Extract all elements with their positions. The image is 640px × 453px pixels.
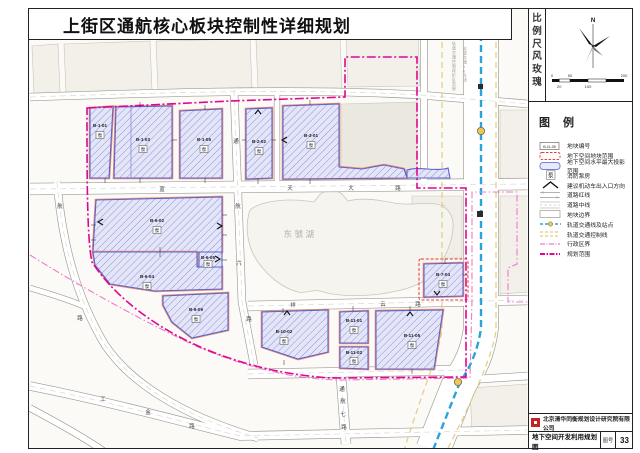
road-label: 祥 [290, 301, 296, 309]
pump-label: 泵 [155, 228, 160, 234]
block-B-7-04 [424, 263, 463, 297]
title-box: 上街区通航核心板块控制性详细规划 [28, 8, 512, 40]
block-label: B-11-01 [346, 318, 363, 323]
wind-rose-icon [579, 28, 610, 64]
road-label: 天 [287, 185, 293, 192]
svg-text:0: 0 [551, 73, 554, 78]
lake [247, 190, 453, 295]
legend-item: 道路红线 [539, 190, 629, 200]
block-label: B-11-05 [404, 333, 421, 338]
road-label: 六 [236, 259, 242, 267]
rail-line-label: 轨道交通10号线 [463, 46, 467, 82]
drawing-title: 地下空间开发利用规划图 [529, 432, 600, 449]
block-B-6-02 [93, 197, 222, 252]
company-name: 北京清华同衡规划设计研究院有限公司 [543, 414, 631, 432]
road-label: 路 [189, 422, 195, 430]
pump-label: 泵 [352, 328, 357, 334]
road-label: 航 [340, 397, 346, 405]
road-label: 航 [235, 202, 241, 210]
underground-range-swatch [539, 151, 563, 161]
pump-label: 泵 [141, 147, 146, 153]
pump-label: 泵 [352, 359, 357, 365]
block-label: B-1-05 [197, 137, 211, 142]
rail-protection-label: 轨道交通控制保护区范围 [452, 41, 456, 91]
sidebar: 比例尺风玫瑰 N 0 50 200 [528, 8, 633, 449]
legend-item-label: 地块编号 [567, 141, 590, 150]
block-label: B-6-05 [201, 255, 215, 260]
block-label: B-1-03 [136, 137, 150, 142]
lake-label: 东虢湖 [283, 229, 316, 239]
road-label: 通 [339, 385, 345, 393]
block-label: B-6-09 [189, 307, 203, 312]
north-label: N [591, 18, 595, 24]
block-label: B-3-01 [304, 133, 318, 138]
scale-bar: 0 50 200 20 100 [551, 73, 628, 89]
legend-item-label: 规划范围 [567, 249, 590, 258]
legend-item: 建议机动车出入口方向 [539, 180, 629, 190]
block-label: B-6-04 [140, 274, 154, 279]
road-label: 路 [341, 423, 347, 431]
legend-item-label: 轨道交通控制线 [567, 230, 608, 239]
pump-room-swatch: 泵 [539, 170, 563, 180]
pump-label: 泵 [145, 284, 150, 290]
pump-label: 泵 [410, 343, 415, 349]
page-title: 上街区通航核心板块控制性详细规划 [63, 12, 351, 37]
sheet-row: 地下空间开发利用规划图 图号 33 [529, 431, 633, 449]
parcel-boundary-swatch [539, 209, 563, 219]
block-label: B-11-02 [346, 350, 363, 355]
sheet-number-label: 图号 [600, 432, 615, 449]
road-label: 大 [348, 184, 354, 192]
legend-item: 道路中线 [539, 200, 629, 210]
road-label: 云 [380, 301, 386, 308]
legend-item: 轨道交通线及站点 [539, 219, 629, 229]
block-label: B-1-01 [93, 123, 107, 128]
road-label: 工 [100, 396, 106, 403]
block-B-3-01-tail [407, 168, 450, 178]
vehicle-entrance-arrow-icon [539, 180, 563, 190]
legend-item: 地块边界 [539, 210, 629, 220]
road-label: 蓝 [159, 185, 165, 193]
svg-text:100: 100 [585, 84, 592, 89]
road-label: 七 [340, 410, 346, 418]
block-B-1-05 [180, 109, 222, 178]
rail-control-line-swatch [539, 229, 563, 239]
road-label: 路 [77, 314, 83, 322]
legend-title: 图例 [539, 114, 629, 130]
legend-item: 行政区界 [539, 239, 629, 249]
rail-line-station-swatch [539, 219, 563, 229]
pump-label: 泵 [309, 143, 314, 149]
company-row: 北京清华同衡规划设计研究院有限公司 [529, 413, 633, 431]
block-id-badge-swatch: B-11-05 [539, 141, 563, 151]
pump-label: 泵 [441, 282, 446, 288]
legend-item: 轨道交通控制线 [539, 229, 629, 239]
admin-boundary-swatch [539, 239, 563, 249]
planning-sheet: B-1-01泵B-1-03泵B-1-05泵B-2-02泵B-3-01泵B-6-0… [0, 0, 640, 453]
legend-item: 地下空间水平最大投影范围 [539, 161, 629, 171]
compass-and-scale: N 0 50 200 20 [546, 8, 632, 101]
legend-item-label: 道路中线 [567, 200, 590, 209]
block-B-1-01 [90, 107, 113, 179]
svg-text:50: 50 [568, 73, 573, 78]
svg-text:20: 20 [557, 84, 562, 89]
legend-item-label: 建议机动车出入口方向 [567, 181, 625, 190]
pump-label: 泵 [282, 339, 287, 345]
road-label: 金 [145, 408, 151, 416]
pump-label: 泵 [202, 147, 207, 153]
svg-text:泵: 泵 [548, 173, 554, 180]
road-label: 路 [246, 315, 252, 323]
svg-text:200: 200 [621, 73, 628, 78]
block-label: B-2-02 [252, 139, 266, 144]
projection-range-swatch [539, 161, 563, 171]
block-label: B-10-02 [276, 329, 293, 334]
legend-item-label: 地块边界 [567, 210, 590, 219]
legend-item-label: 行政区界 [567, 239, 590, 248]
company-logo-icon [531, 418, 540, 427]
pump-label: 泵 [257, 149, 262, 155]
road-redline-swatch [539, 190, 563, 200]
legend-item-label: 轨道交通线及站点 [567, 220, 613, 229]
scale-rose-section: 比例尺风玫瑰 N 0 50 200 [529, 8, 633, 102]
legend-item-label: 消防泵房 [567, 171, 590, 180]
road-label: 通 [233, 137, 239, 145]
svg-text:B-11-05: B-11-05 [543, 145, 556, 149]
scale-rose-vertical-label: 比例尺风玫瑰 [529, 8, 546, 101]
pump-label: 泵 [98, 133, 103, 139]
legend-item: B-11-05 地块编号 [539, 141, 629, 151]
legend-item-label: 道路红线 [567, 190, 590, 199]
road-label: 航 [57, 202, 63, 210]
pump-label: 泵 [206, 262, 211, 268]
road-label: 路 [415, 300, 421, 308]
road-centerline-swatch [539, 200, 563, 210]
block-label: B-7-04 [436, 272, 450, 277]
block-B-11-05 [376, 310, 443, 369]
planning-scope-swatch [539, 249, 563, 259]
pump-label: 泵 [194, 317, 199, 323]
block-label: B-6-02 [150, 218, 164, 223]
block-B-1-03 [114, 106, 172, 178]
legend-section: 图例 B-11-05 地块编号 地下空间地块范围 地下空间水平最大投影范围 [529, 102, 633, 259]
sheet-number: 33 [615, 432, 633, 449]
road-label: 路 [395, 184, 401, 192]
legend-item: 规划范围 [539, 249, 629, 259]
